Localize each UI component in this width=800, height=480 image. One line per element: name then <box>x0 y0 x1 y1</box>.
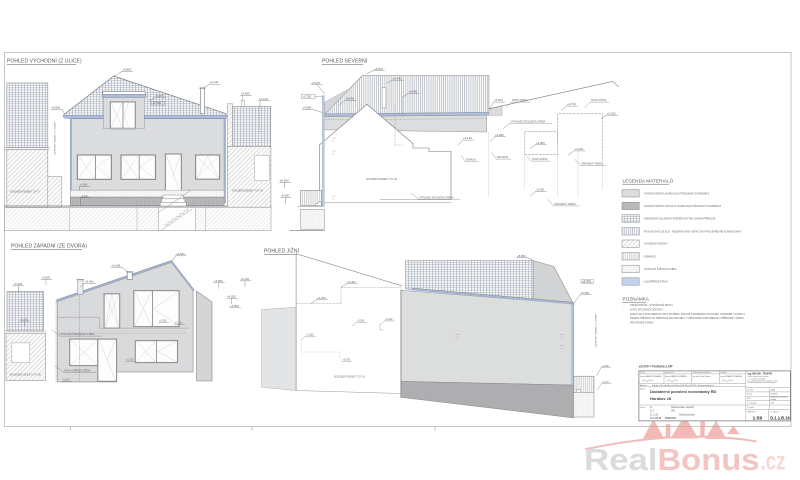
svg-text:STÁVAJÍCÍ SPOLEČNÁ STĚNA: STÁVAJÍCÍ SPOLEČNÁ STĚNA <box>419 196 454 199</box>
svg-text:+5,400: +5,400 <box>85 279 94 283</box>
svg-text:MĚŘÍTKO: MĚŘÍTKO <box>747 411 756 414</box>
svg-text:Č. kopie: Č. kopie <box>747 406 754 409</box>
svg-text:LEGENDA MATERIÁLŮ: LEGENDA MATERIÁLŮ <box>623 178 674 184</box>
svg-text:NOVÁ STĚNA: NOVÁ STĚNA <box>532 158 548 161</box>
svg-text:D.: D. <box>650 407 653 409</box>
svg-text:Kreslil: Kreslil <box>640 372 645 374</box>
svg-text:JEDNÁ SE O DOKUMENTACI PRO POT: JEDNÁ SE O DOKUMENTACI PRO POTŘEBY ZÍSKÁ… <box>630 313 745 316</box>
svg-text:SOUSEDNÍ OBJEKT Č.P. 9D: SOUSEDNÍ OBJEKT Č.P. 9D <box>10 373 41 376</box>
svg-text:-0,200: -0,200 <box>63 379 70 382</box>
svg-text:-ZÁBRADLÍ: -ZÁBRADLÍ <box>644 255 657 258</box>
svg-text:+8,800: +8,800 <box>123 68 132 72</box>
svg-text:+5,870: +5,870 <box>156 94 165 98</box>
svg-text:+8,800: +8,800 <box>517 254 526 258</box>
svg-text:NOVÁ STĚNA: NOVÁ STĚNA <box>512 99 528 102</box>
svg-text:+0,590: +0,590 <box>602 365 610 368</box>
svg-text:ZATEPLENÍ FASÁDY TL. 150MM: ZATEPLENÍ FASÁDY TL. 150MM <box>595 314 598 347</box>
svg-text:stavby: stavby <box>771 398 777 401</box>
svg-text:+3,230: +3,230 <box>385 318 393 321</box>
svg-text:UPRAVENÝ TERÉN: UPRAVENÝ TERÉN <box>581 162 603 165</box>
svg-text:+1,750: +1,750 <box>126 358 134 361</box>
svg-text:STÁVAJÍCÍ SPOLEČNÁ STĚNA: STÁVAJÍCÍ SPOLEČNÁ STĚNA <box>61 333 96 336</box>
svg-text:Horákov 28, městská část Brno: Horákov 28, městská část Brno Žide, Brno… <box>652 384 714 387</box>
svg-text:POHLED JIŽNÍ: POHLED JIŽNÍ <box>264 247 300 255</box>
svg-text:+5,250: +5,250 <box>607 111 616 115</box>
svg-text:09/2021: 09/2021 <box>771 394 778 396</box>
svg-text:Účel: Účel <box>747 397 751 400</box>
svg-text:SOUSEDNÍ OBJEKT Č.P. 19: SOUSEDNÍ OBJEKT Č.P. 19 <box>334 375 365 378</box>
svg-text:-KERAMICKÁ SKLÁDANÁ STŘEŠNÍ KR: -KERAMICKÁ SKLÁDANÁ STŘEŠNÍ KRYTINA, BAR… <box>644 218 716 221</box>
svg-text:Horákov 28: Horákov 28 <box>650 396 672 401</box>
svg-text:ZBOURAT: ZBOURAT <box>497 156 509 159</box>
svg-text:.cz: .cz <box>761 448 786 476</box>
svg-text:Real: Real <box>584 442 658 477</box>
svg-text:Investor: Investor <box>720 371 727 374</box>
svg-text:ŘEŠENÍ PŘÍPADNÝCH PŘEDPOKLÁDÁ: ŘEŠENÍ PŘÍPADNÝCH PŘEDPOKLÁDÁ PROJEKT V … <box>630 317 744 320</box>
svg-text:+3,480: +3,480 <box>536 141 545 145</box>
svg-text:+8,800: +8,800 <box>176 252 185 256</box>
svg-text:Dodatečné povolení novostavby: Dodatečné povolení novostavby RD <box>650 389 717 394</box>
svg-text:Formát: Formát <box>747 388 753 391</box>
svg-text:POHLEDY: POHLEDY <box>665 418 677 420</box>
svg-text:+2,900: +2,900 <box>357 320 365 323</box>
svg-text:SOUSEDNÍ OBJEKT Č.P. 92: SOUSEDNÍ OBJEKT Č.P. 92 <box>366 178 397 181</box>
svg-text:+5,430: +5,430 <box>346 97 355 101</box>
svg-text:±0,000 = Podlaha 1.NP: ±0,000 = Podlaha 1.NP <box>639 365 674 369</box>
svg-text:+3,130: +3,130 <box>463 136 472 140</box>
svg-text:NOVÁ OPĚRNÁ STĚNA: NOVÁ OPĚRNÁ STĚNA <box>64 369 91 372</box>
svg-text:+5,650: +5,650 <box>42 275 51 279</box>
svg-text:RD: RD <box>671 411 675 413</box>
svg-text:UPRAVENÝ TERÉN: UPRAVENÝ TERÉN <box>554 203 576 206</box>
svg-text:Adresa:: Adresa: <box>640 384 647 387</box>
svg-text:NOVÁ STĚNA: NOVÁ STĚNA <box>591 99 607 102</box>
svg-text:+5,650: +5,650 <box>241 92 250 96</box>
svg-text:-FASÁDNÍ OMÍTKA SOKLOVÁ, BARVA: -FASÁDNÍ OMÍTKA SOKLOVÁ, BARVA DLE POŽAD… <box>644 205 722 208</box>
svg-text:+5,130: +5,130 <box>241 277 250 281</box>
svg-text:+5,870: +5,870 <box>312 81 321 85</box>
svg-text:218: 218 <box>771 402 774 404</box>
svg-text:ZATEPLENÍ FASÁDY TL. 150MM: ZATEPLENÍ FASÁDY TL. 150MM <box>53 122 56 155</box>
svg-text:m.toufar@projekty.cz; www.proj: m.toufar@projekty.cz; www.projekty.cz <box>748 381 777 384</box>
svg-text:D.1.1.B.16: D.1.1.B.16 <box>770 415 790 420</box>
svg-text:+8,740: +8,740 <box>393 76 402 80</box>
svg-text:-KLEMPÍŘSKÉ PRVKY: -KLEMPÍŘSKÉ PRVKY <box>644 281 669 284</box>
svg-text:+1,150: +1,150 <box>306 333 314 336</box>
svg-text:-SOUSEDNÍ OBJEKTY: -SOUSEDNÍ OBJEKTY <box>644 243 669 246</box>
svg-text:POHLED ZÁPADNÍ (ZE DVORA): POHLED ZÁPADNÍ (ZE DVORA) <box>11 243 87 250</box>
svg-text:+4,050: +4,050 <box>230 304 239 308</box>
svg-text:4xA4: 4xA4 <box>771 388 775 391</box>
svg-text:+5,130: +5,130 <box>259 97 268 101</box>
svg-text:POHLED VÝCHODNÍ (Z ULICE): POHLED VÝCHODNÍ (Z ULICE) <box>7 58 82 65</box>
svg-text:-0,420: -0,420 <box>281 193 289 197</box>
svg-text:POZNÁMKA: POZNÁMKA <box>623 296 650 302</box>
svg-text:+3,280: +3,280 <box>495 133 504 137</box>
svg-text:Vypracoval: Vypracoval <box>665 372 674 374</box>
svg-text:+3,230: +3,230 <box>159 320 167 323</box>
svg-text:Bonus: Bonus <box>658 442 760 477</box>
svg-text:Č. výkresu: Č. výkresu <box>770 411 779 414</box>
svg-text:-0,420: -0,420 <box>602 381 609 384</box>
svg-text:-0,420: -0,420 <box>81 195 88 198</box>
svg-text:-0,200: -0,200 <box>536 188 544 192</box>
svg-text:Datum: Datum <box>747 393 753 396</box>
svg-text:+5,700: +5,700 <box>153 101 162 105</box>
svg-text:+6,145: +6,145 <box>210 80 219 84</box>
svg-text:+5,480: +5,480 <box>409 90 418 94</box>
svg-text:+0,980: +0,980 <box>80 184 88 187</box>
svg-text:KOVO SPOJOVACÍ DOPLŇKY: KOVO SPOJOVACÍ DOPLŇKY <box>630 308 664 311</box>
svg-text:+5,650: +5,650 <box>214 279 223 283</box>
svg-text:1:50: 1:50 <box>753 415 763 420</box>
svg-text:Dokumentace objektů: Dokumentace objektů <box>671 406 694 409</box>
svg-text:±0,000: ±0,000 <box>280 179 289 183</box>
svg-text:POHLED SEVERNÍ: POHLED SEVERNÍ <box>322 58 368 65</box>
svg-text:Zodpovědný projektant: Zodpovědný projektant <box>693 371 712 374</box>
svg-text:Obsah:: Obsah: <box>640 407 646 409</box>
svg-text:PROVÁDĚNÍ STAVBY: PROVÁDĚNÍ STAVBY <box>630 322 654 325</box>
svg-text:Ing. MICHAL TOUFAR: Ing. MICHAL TOUFAR <box>748 372 773 375</box>
svg-text:+2,375: +2,375 <box>20 318 28 321</box>
svg-text:STÁVAJÍCÍ SPOLEČNÁ STĚNA: STÁVAJÍCÍ SPOLEČNÁ STĚNA <box>511 120 546 123</box>
svg-text:+4,250: +4,250 <box>317 296 326 300</box>
svg-text:OPLECHOVÁNÍ - SYSTÉMOVÉ PRVKY: OPLECHOVÁNÍ - SYSTÉMOVÉ PRVKY <box>630 304 673 307</box>
svg-text:TERASA: TERASA <box>466 159 476 162</box>
svg-text:D.1.1.B.16: D.1.1.B.16 <box>650 418 662 420</box>
svg-text:Č. zakázky: Č. zakázky <box>747 401 756 404</box>
svg-text:+8,600: +8,600 <box>374 67 383 71</box>
svg-text:Výkresová část: Výkresová část <box>679 413 695 416</box>
svg-text:+4,250: +4,250 <box>227 295 236 299</box>
svg-text:+0,750: +0,750 <box>343 358 351 361</box>
svg-text:+6,145: +6,145 <box>112 263 121 267</box>
svg-text:+3,130: +3,130 <box>575 147 584 151</box>
svg-text:+5,700: +5,700 <box>303 95 312 99</box>
svg-text:SOUSEDNÍ OBJEKT Č.P. 92: SOUSEDNÍ OBJEKT Č.P. 92 <box>232 189 263 192</box>
svg-text:Název:: Název: <box>640 388 646 390</box>
svg-text:-STÁVAJÍCÍ ŠTĚTOVÁ STĚNA: -STÁVAJÍCÍ ŠTĚTOVÁ STĚNA <box>644 268 678 271</box>
svg-text:+4,590: +4,590 <box>52 106 61 110</box>
svg-text:+5,100: +5,100 <box>494 98 503 102</box>
svg-text:-FASÁDNÍ OMÍTKA, BARVA DLE POŽ: -FASÁDNÍ OMÍTKA, BARVA DLE POŽADAVKŮ STA… <box>644 192 710 195</box>
svg-text:+5,250: +5,250 <box>581 291 590 295</box>
svg-text:SOUSEDNÍ OBJEKT Č.P. 9: SOUSEDNÍ OBJEKT Č.P. 9 <box>10 191 40 194</box>
svg-text:-POVLAKOVÁ IZOLACE - NEDEFINOV: -POVLAKOVÁ IZOLACE - NEDEFINOVANÝ ASFALT… <box>644 230 742 233</box>
svg-text:+4,730: +4,730 <box>567 102 576 106</box>
svg-text:+5,300: +5,300 <box>347 280 356 284</box>
svg-text:+4,590: +4,590 <box>303 106 312 110</box>
svg-text:+2,810: +2,810 <box>175 322 183 325</box>
svg-text:+5,130: +5,130 <box>14 282 23 286</box>
svg-text:D.1.1.B: D.1.1.B <box>650 414 658 416</box>
